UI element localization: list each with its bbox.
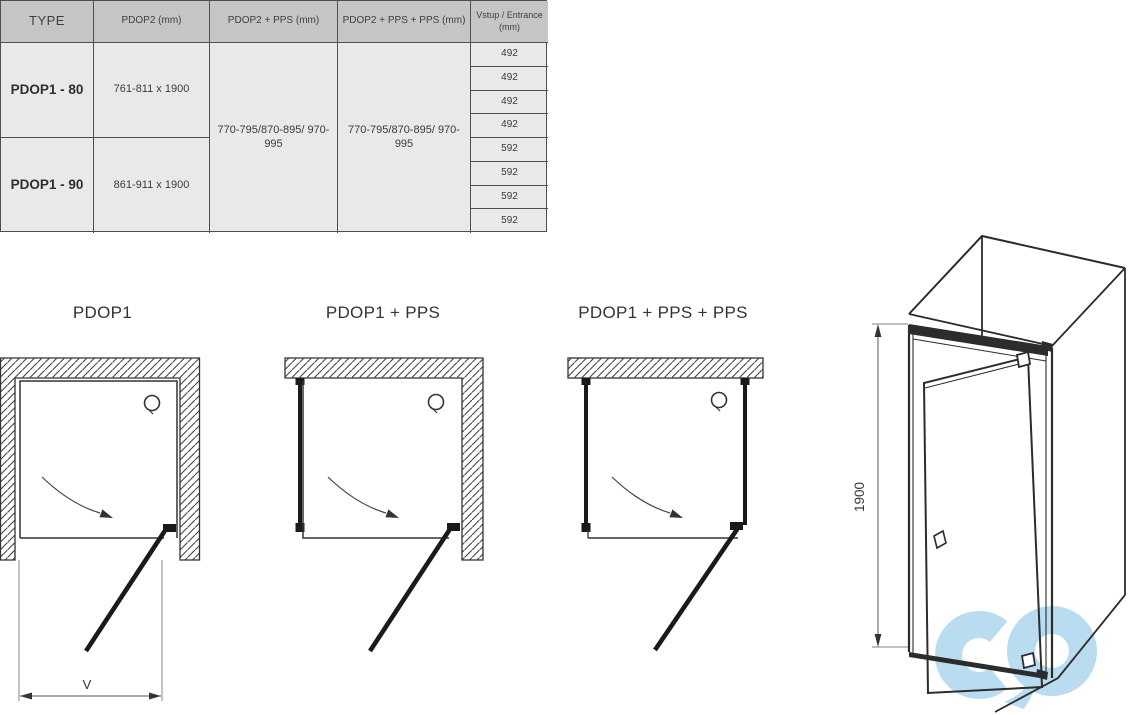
door-swing-arrowhead-icon [385, 509, 399, 518]
entrance-value: 492 [471, 114, 548, 138]
door-swing-arrow-icon [612, 477, 670, 513]
entrance-value: 592 [471, 138, 548, 162]
open-door-panel [655, 525, 740, 650]
type-pdop1-80: PDOP1 - 80 [1, 43, 94, 138]
col-header-pdop2: PDOP2 (mm) [94, 1, 210, 43]
plan-diagram-pdop1-pps-pps [552, 355, 774, 715]
top-hinge-icon [1017, 352, 1030, 367]
panel-cap [582, 523, 591, 532]
col-header-entrance: Vstup / Entrance (mm) [471, 1, 548, 43]
enclosure-outline [303, 381, 449, 538]
isometric-shower-door-view: 1900 [850, 225, 1129, 715]
open-door-panel [86, 526, 168, 651]
col-header-pdop2-pps-pps: PDOP2 + PPS + PPS (mm) [338, 1, 471, 43]
height-dimension-label: 1900 [852, 482, 867, 512]
width-dimension-label: V [83, 677, 92, 692]
panel-cap [582, 378, 591, 385]
col-header-pdop2-pps: PDOP2 + PPS (mm) [210, 1, 338, 43]
door-hinge [447, 523, 460, 531]
drain-icon [429, 395, 444, 410]
door-swing-arrow-icon [42, 477, 100, 513]
door-swing-arrowhead-icon [669, 509, 683, 518]
pdop2-dim-80: 761-811 x 1900 [94, 43, 210, 138]
diagram-title-pdop1: PDOP1 [0, 303, 205, 325]
pps-range-2: 770-795/870-895/ 970-995 [338, 43, 471, 233]
entrance-value: 592 [471, 186, 548, 210]
entrance-value: 492 [471, 91, 548, 115]
door-hinge [730, 522, 743, 530]
open-door-panel [370, 526, 452, 651]
door-swing-arrowhead-icon [99, 509, 113, 518]
pdop2-dim-90: 861-911 x 1900 [94, 138, 210, 233]
door-handle-icon [934, 531, 946, 548]
hatched-wall [568, 358, 763, 378]
entrance-value: 592 [471, 209, 548, 233]
entrance-value: 492 [471, 67, 548, 91]
spec-table: TYPE PDOP2 (mm) PDOP2 + PPS (mm) PDOP2 +… [0, 0, 547, 232]
drain-icon [712, 393, 727, 408]
col-header-type: TYPE [1, 1, 94, 43]
panel-cap [741, 378, 750, 385]
plan-diagram-pdop1-pps [277, 355, 489, 715]
door-hinge [163, 524, 176, 532]
bottom-hinge-icon [1022, 653, 1035, 668]
diagram-title-pdop1-pps: PDOP1 + PPS [277, 303, 489, 325]
height-dimension: 1900 [852, 324, 908, 647]
width-dimension: V [19, 560, 162, 701]
drain-icon [145, 396, 160, 411]
door-swing-arrow-icon [328, 477, 386, 513]
pps-range-1: 770-795/870-895/ 970-995 [210, 43, 338, 233]
type-pdop1-90: PDOP1 - 90 [1, 138, 94, 233]
diagram-title-pdop1-pps-pps: PDOP1 + PPS + PPS [552, 303, 774, 325]
entrance-value: 592 [471, 162, 548, 186]
plan-diagram-pdop1: V [0, 355, 205, 715]
entrance-value: 492 [471, 43, 548, 67]
